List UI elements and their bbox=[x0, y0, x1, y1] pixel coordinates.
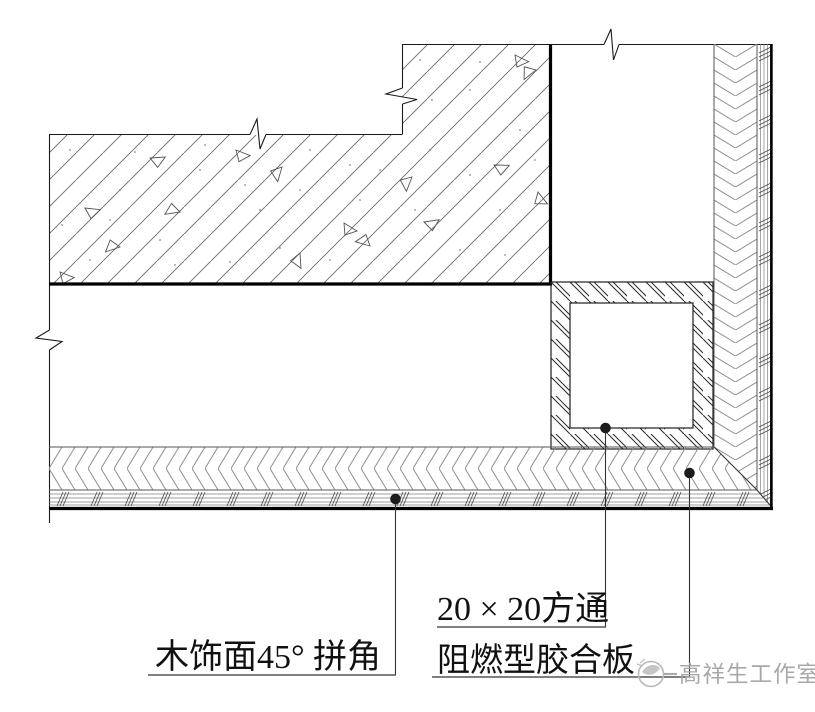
leader-dot-icon bbox=[600, 423, 611, 434]
watermark-text: 高祥生工作室 bbox=[679, 662, 815, 687]
studio-logo-icon bbox=[637, 659, 664, 687]
plywood-layer-vertical bbox=[714, 44, 757, 490]
plywood-label: 阻燃型胶合板 bbox=[437, 642, 635, 679]
detail-drawing-canvas: 木饰面45° 拼角 20 × 20方通 阻燃型胶合板 高祥生工作室 bbox=[0, 0, 815, 712]
concrete-hatch-fill bbox=[49, 45, 550, 284]
plywood-layer-horizontal bbox=[49, 447, 757, 490]
break-mark-icon bbox=[604, 29, 619, 60]
break-mark-icon bbox=[36, 330, 62, 350]
tube-label: 20 × 20方通 bbox=[437, 590, 609, 628]
square-tube-outer-edge bbox=[551, 282, 713, 449]
leader-miter: 木饰面45° 拼角 bbox=[148, 494, 401, 676]
square-tube-inner-edge bbox=[570, 303, 693, 428]
leader-dot-icon bbox=[390, 494, 401, 505]
square-tube-hatch-fill bbox=[551, 282, 713, 449]
miter-label: 木饰面45° 拼角 bbox=[155, 638, 381, 676]
veneer-layer-horizontal bbox=[49, 490, 772, 508]
studio-watermark: 高祥生工作室 bbox=[637, 659, 815, 687]
square-tube-20x20 bbox=[551, 282, 713, 449]
construction-detail-svg: 木饰面45° 拼角 20 × 20方通 阻燃型胶合板 高祥生工作室 bbox=[0, 0, 815, 712]
leader-dot-icon bbox=[684, 468, 695, 479]
veneer-layer-vertical bbox=[757, 44, 772, 508]
